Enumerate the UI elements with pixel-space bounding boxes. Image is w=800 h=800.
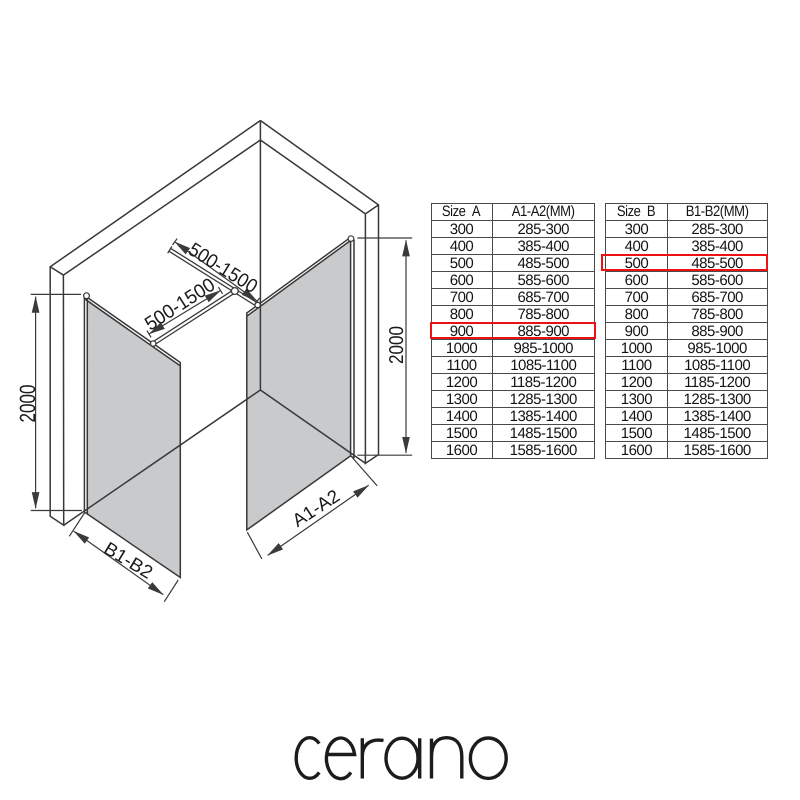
svg-text:2000: 2000 — [386, 326, 408, 364]
svg-text:2000: 2000 — [15, 385, 40, 423]
svg-text:500-1500: 500-1500 — [141, 274, 219, 336]
